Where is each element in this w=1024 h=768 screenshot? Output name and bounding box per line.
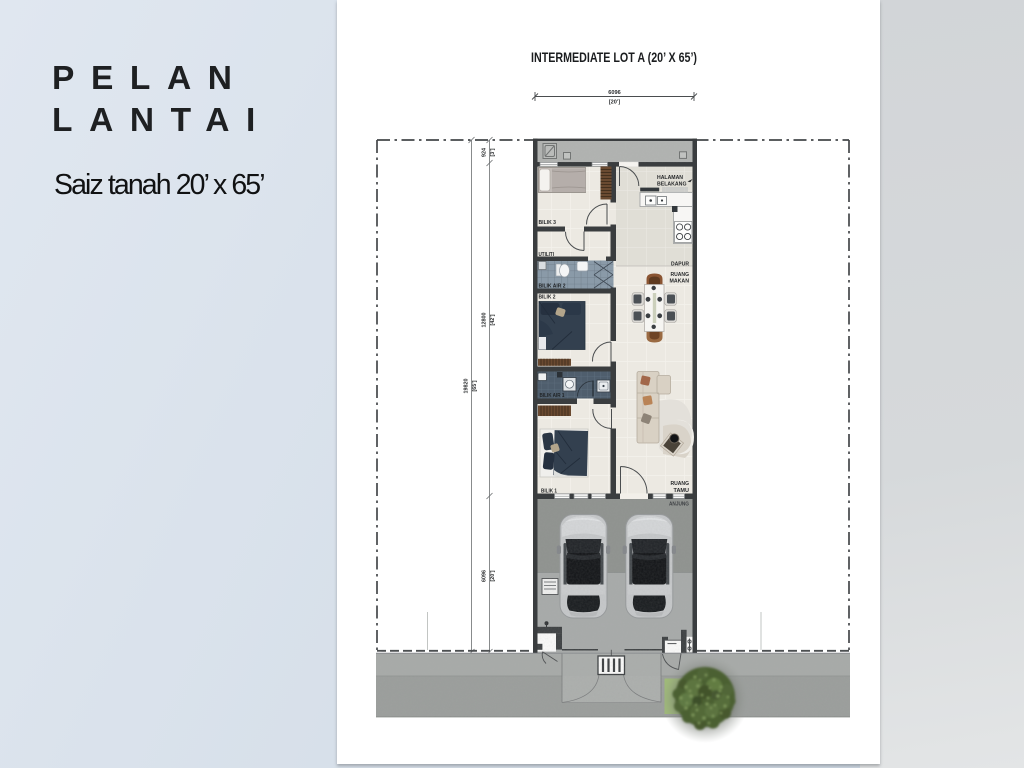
svg-text:6096: 6096 [608, 90, 620, 96]
svg-text:TAMU: TAMU [674, 488, 690, 494]
svg-text:[20’]: [20’] [490, 570, 496, 581]
svg-text:BILIK AIR 2: BILIK AIR 2 [539, 283, 566, 289]
svg-text:12800: 12800 [482, 313, 488, 328]
svg-text:924: 924 [482, 148, 488, 157]
svg-text:RUANG: RUANG [671, 481, 690, 487]
svg-text:UTILITI: UTILITI [539, 252, 555, 258]
svg-text:DAPUR: DAPUR [671, 262, 689, 268]
svg-text:6096: 6096 [482, 570, 488, 582]
svg-text:BILIK 3: BILIK 3 [539, 220, 557, 226]
svg-text:19820: 19820 [464, 379, 470, 394]
svg-text:[42’]: [42’] [490, 314, 496, 325]
svg-text:HALAMAN: HALAMAN [657, 175, 683, 181]
svg-text:BILIK AIR 1: BILIK AIR 1 [540, 393, 565, 399]
svg-text:[65’]: [65’] [472, 380, 478, 391]
svg-text:INTERMEDIATE LOT A (20’ X 65’): INTERMEDIATE LOT A (20’ X 65’) [531, 49, 697, 65]
svg-text:[3’]: [3’] [490, 148, 496, 156]
svg-text:RUANG: RUANG [671, 272, 690, 278]
svg-text:MAKAN: MAKAN [670, 279, 690, 285]
svg-text:BILIK 1: BILIK 1 [541, 488, 557, 494]
svg-text:[20’]: [20’] [609, 100, 621, 106]
svg-text:BILIK 2: BILIK 2 [539, 294, 556, 300]
svg-text:BELAKANG: BELAKANG [657, 181, 687, 187]
